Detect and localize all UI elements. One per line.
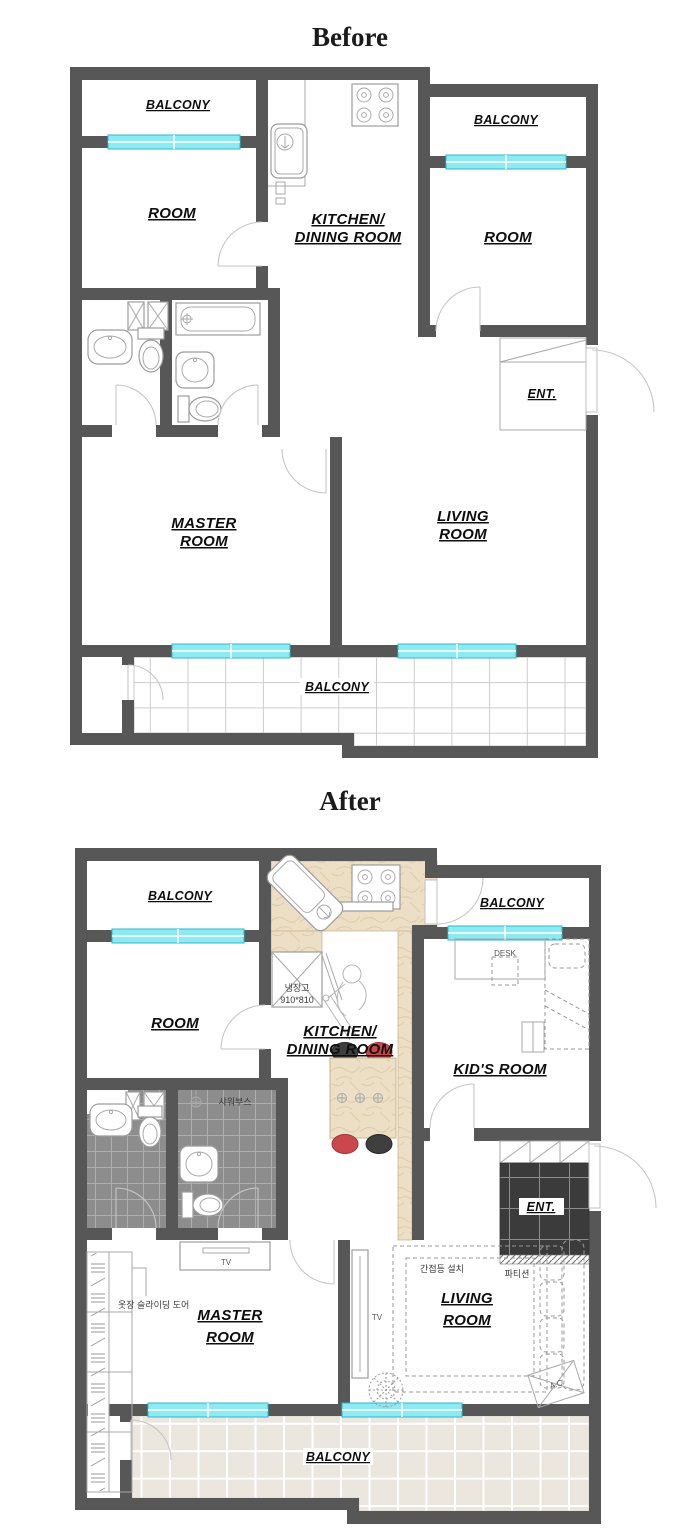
room-label: ROOM: [151, 1015, 199, 1032]
kitchen-label: KITCHEN/: [311, 211, 386, 228]
bed-icon: [545, 939, 589, 1049]
balcony-label: BALCONY: [306, 1450, 371, 1464]
sink-icon: [88, 330, 132, 364]
partition: [500, 1255, 589, 1264]
master-room-label: ROOM: [206, 1329, 254, 1346]
after-kids-room: DESK: [455, 939, 589, 1052]
master-room-label: MASTER: [171, 515, 236, 532]
shower-label: 샤워부스: [218, 1097, 251, 1107]
floorplan-comparison: Before After: [0, 0, 700, 1540]
dining-table: [330, 1043, 396, 1154]
wardrobe-label: 옷장 슬라이딩 도어: [118, 1300, 189, 1310]
after-living-room: TV 간접등 설치 LIVING ROOM A.C: [352, 1240, 584, 1408]
before-plan: BALCONY ROOM KITCHEN/ DINING ROOM BALCON…: [70, 67, 654, 758]
before-kitchen-counter: [268, 80, 398, 204]
tv-console: TV: [180, 1242, 270, 1270]
tv-label: TV: [221, 1258, 232, 1267]
floorplan-svg: BALCONY ROOM KITCHEN/ DINING ROOM BALCON…: [0, 0, 700, 1540]
toilet-icon: [178, 396, 221, 422]
master-room-label: ROOM: [180, 533, 228, 550]
toilet-icon: [182, 1192, 223, 1218]
plant-icon: [369, 1373, 403, 1407]
before-bathroom: [88, 302, 260, 422]
living-room-label: LIVING: [441, 1290, 493, 1307]
balcony-label: BALCONY: [146, 98, 211, 112]
master-room-label: MASTER: [197, 1307, 262, 1324]
kitchen-shelf: [337, 902, 393, 911]
before-balcony-bottom-tiles: [134, 657, 586, 746]
indirect-light-label: 간접등 설치: [420, 1263, 464, 1274]
sink-icon: [180, 1146, 218, 1182]
kitchen-sink-icon: [271, 124, 307, 204]
toilet-icon: [138, 1106, 162, 1147]
kitchen-label: DINING ROOM: [287, 1041, 394, 1058]
balcony-label: BALCONY: [148, 889, 213, 903]
kitchen-label: DINING ROOM: [295, 229, 402, 246]
entrance-label: ENT.: [527, 1200, 556, 1214]
desk-label: DESK: [494, 949, 516, 958]
fridge-label: 냉장고: [285, 983, 310, 993]
entrance-label: ENT.: [528, 387, 557, 401]
balcony-label: BALCONY: [305, 680, 370, 694]
closet-x-icon: [128, 302, 168, 330]
toilet-icon: [138, 328, 164, 372]
refrigerator-icon: 냉장고 910*810: [272, 952, 342, 1007]
room-label: ROOM: [148, 205, 196, 222]
partition-label: 파티션: [505, 1269, 530, 1279]
after-plan: 냉장고 910*810: [75, 848, 656, 1524]
before-labels: BALCONY ROOM KITCHEN/ DINING ROOM BALCON…: [146, 98, 556, 695]
stove-icon: [352, 84, 398, 126]
shelf-icon: [522, 1022, 544, 1052]
balcony-label: BALCONY: [480, 896, 545, 910]
room-label: ROOM: [484, 229, 532, 246]
sink-icon: [176, 352, 214, 388]
before-entrance: [500, 338, 586, 430]
bathtub-icon: [176, 303, 260, 335]
living-room-label: LIVING: [437, 508, 489, 525]
before-walls: [70, 67, 598, 758]
ac-unit-icon: A.C: [528, 1360, 584, 1407]
sink-icon: [90, 1104, 132, 1136]
kids-room-label: KID'S ROOM: [453, 1061, 546, 1078]
fridge-size-label: 910*810: [280, 995, 314, 1005]
balcony-label: BALCONY: [474, 113, 539, 127]
tv-panel: TV: [352, 1250, 383, 1378]
kitchen-label: KITCHEN/: [303, 1023, 378, 1040]
living-room-label: ROOM: [443, 1312, 491, 1329]
tv-label: TV: [372, 1313, 383, 1322]
living-room-label: ROOM: [439, 526, 487, 543]
